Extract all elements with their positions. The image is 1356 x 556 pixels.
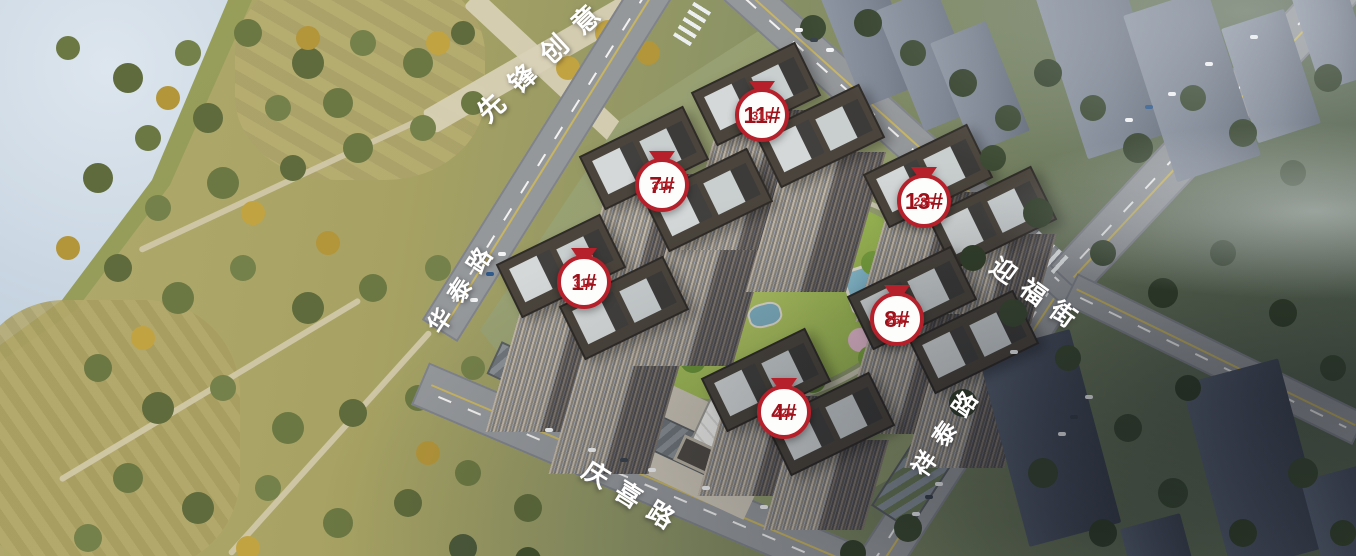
building-floors: 31F [652, 180, 673, 192]
building-floors: 31F [574, 277, 595, 289]
building-floors: 26F [887, 314, 908, 326]
pin-circle: 11# 31F [735, 88, 789, 142]
building-floors: 22F [774, 407, 795, 419]
pin-circle: 4# 22F [757, 385, 811, 439]
cars-dark [0, 0, 8, 4]
park-field [0, 300, 240, 556]
crosswalk [673, 2, 711, 47]
pin-circle: 7# 31F [635, 158, 689, 212]
building-floors: 31F [752, 110, 773, 122]
park-field [235, 0, 485, 180]
building-floors: 28F [914, 196, 935, 208]
pin-circle: 1# 31F [557, 255, 611, 309]
context-building [1120, 513, 1198, 556]
aerial-masterplan-view: 先锋创意 华泰路 迎福街 祥泰路 庆喜路 1# 31F 4# 22F 7# 31… [0, 0, 1356, 556]
pin-circle: 8# 26F [870, 292, 924, 346]
pin-circle: 13# 28F [897, 174, 951, 228]
